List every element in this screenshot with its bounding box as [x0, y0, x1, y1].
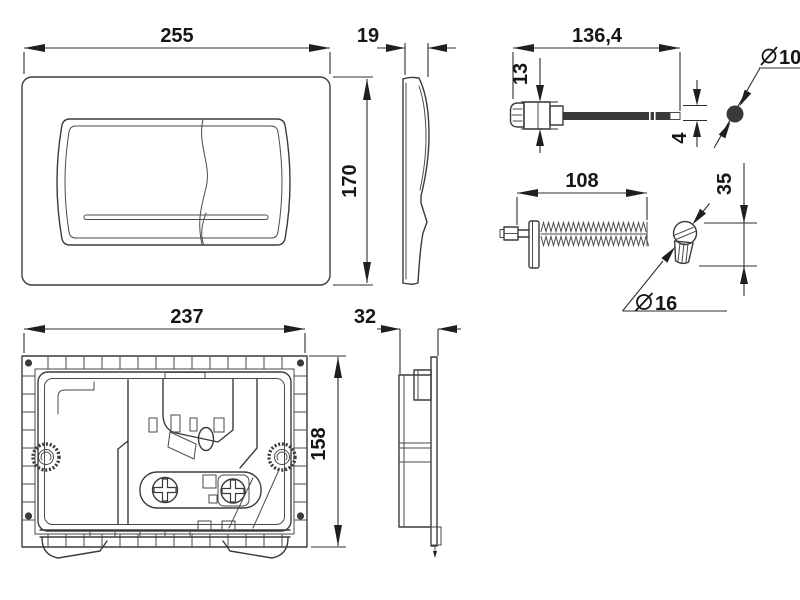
dim-label-knob-height: 35 [714, 173, 736, 195]
dim-label-plate-depth: 19 [357, 25, 379, 47]
dim-label-rod-length: 136,4 [572, 25, 623, 47]
dim-label-frame-height: 158 [308, 427, 330, 460]
flush-plate-dimension-drawing: 255 170 19 136,4 [0, 0, 800, 600]
screw-hole [297, 512, 304, 519]
screw-hole [25, 512, 32, 519]
dim-label-rod-head-height: 13 [510, 63, 532, 85]
dim-label-plate-height: 170 [339, 164, 361, 197]
dim-label-frame-width: 237 [170, 306, 203, 328]
screw-hole [25, 359, 32, 366]
screw-hole [297, 359, 304, 366]
dim-label-spindle-length: 108 [565, 170, 598, 192]
dim-label-rod-tip-thickness: 4 [669, 132, 691, 144]
dim-label-knob-diameter: 16 [655, 293, 677, 315]
dim-label-rod-end-diameter: 10 [779, 47, 800, 69]
rod-end-section [727, 106, 744, 123]
rod-shaft [563, 112, 670, 120]
technical-drawing-page: 255 170 19 136,4 [0, 0, 800, 600]
dim-label-plate-width: 255 [160, 25, 193, 47]
dim-label-frame-depth: 32 [354, 306, 376, 328]
